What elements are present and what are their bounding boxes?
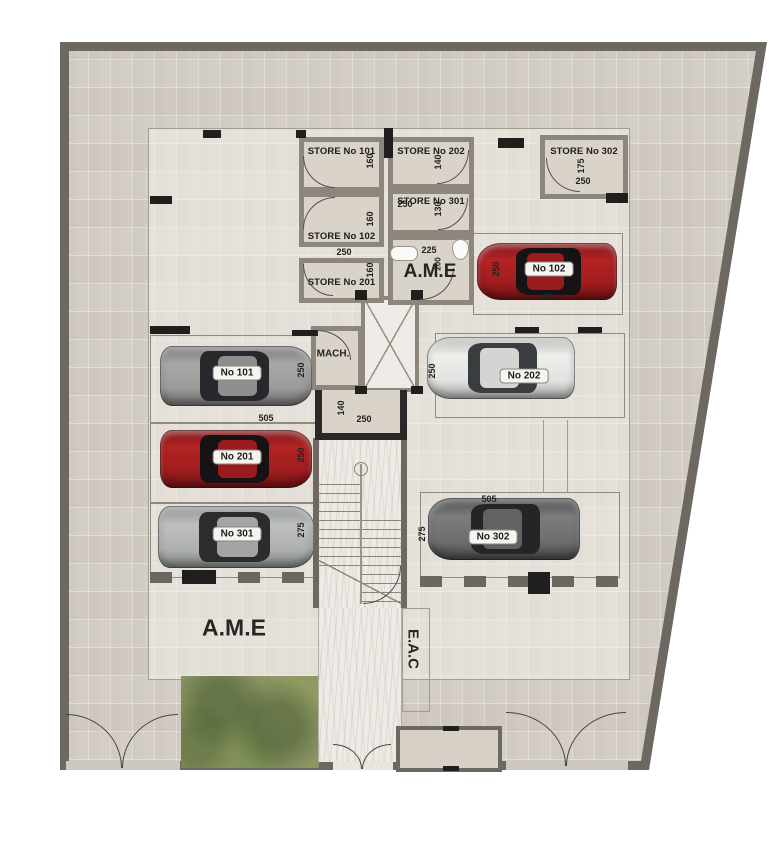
dim-store201-w: 250: [336, 247, 351, 257]
dim-lobby-w: 250: [356, 414, 371, 424]
dim-p201-h: 250: [296, 447, 306, 462]
column-block: [150, 326, 190, 334]
dim-p302-w: 505: [481, 494, 496, 504]
car-label-102: No 102: [525, 262, 574, 277]
ame-room-label: A.M.E: [404, 261, 457, 283]
dim-p202-h: 250: [427, 363, 437, 378]
car-label-301: No 301: [213, 527, 262, 542]
dim-store102-h: 160: [365, 211, 375, 226]
stair-newel-circle: [354, 462, 368, 476]
dashed-wall-segment: [150, 572, 318, 583]
column-block: [150, 196, 172, 204]
car-label-101: No 101: [213, 366, 262, 381]
dim-extension-line: [567, 420, 568, 492]
dim-store201-h: 160: [365, 262, 375, 277]
sink-fixture: [390, 246, 418, 261]
dim-p102-w: 450: [538, 292, 553, 302]
column-block: [203, 130, 221, 138]
store-102-label: STORE No 102: [305, 231, 378, 242]
dim-lobby-h: 140: [336, 400, 346, 415]
car-label-202: No 202: [500, 369, 549, 384]
elevator-corner-column: [355, 290, 367, 300]
garden-patch: [181, 676, 319, 768]
column-block: [528, 572, 550, 594]
column-block: [292, 330, 318, 336]
car-label-302: No 302: [469, 530, 518, 545]
elevator-corner-column: [411, 386, 423, 394]
machine-room-label: MACH.: [317, 349, 350, 360]
area-label-ame: A.M.E: [202, 615, 266, 642]
elevator-shaft: [361, 296, 419, 392]
dim-p302-h: 275: [417, 526, 427, 541]
dashed-wall-segment: [420, 576, 618, 587]
dim-ame-w: 225: [421, 245, 436, 255]
dim-p301-h: 275: [296, 522, 306, 537]
car-label-201: No 201: [213, 450, 262, 465]
column-block: [515, 327, 539, 333]
elevator-corner-column: [355, 386, 367, 394]
store-302-label: STORE No 302: [546, 146, 622, 157]
dim-store302-w: 250: [575, 176, 590, 186]
column-block: [578, 327, 602, 333]
column-block: [606, 193, 628, 203]
dim-store202-h: 140: [433, 154, 443, 169]
column-block: [498, 138, 524, 148]
column-block: [384, 128, 393, 158]
dim-store301-w: 250: [397, 199, 412, 209]
dim-store302-h: 175: [576, 158, 586, 173]
floor-plan-page: MACH. STORE No 101 STORE No 102 STORE No…: [0, 0, 777, 844]
column-block: [443, 726, 459, 731]
stair-treads-left: [318, 478, 362, 566]
dim-p102-h: 250: [491, 261, 501, 276]
dim-store101-h: 160: [365, 153, 375, 168]
column-block: [182, 570, 216, 584]
dim-p101-h: 250: [296, 362, 306, 377]
area-label-eac: E.A.C: [405, 629, 422, 669]
dim-ame-h: 200: [434, 257, 443, 270]
dim-p101-w: 505: [258, 413, 273, 423]
column-block: [296, 130, 306, 138]
entrance-corridor: [318, 608, 402, 762]
dim-extension-line: [543, 420, 544, 492]
column-block: [443, 766, 459, 771]
dim-store301-h: 130: [433, 201, 443, 216]
